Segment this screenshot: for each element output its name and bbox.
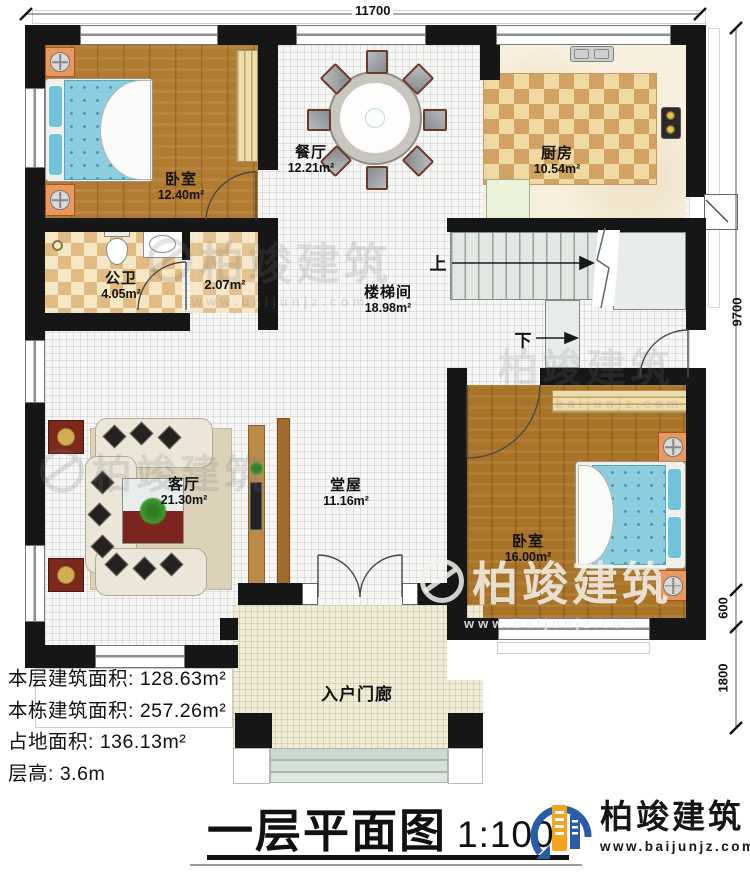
- window: [25, 88, 45, 168]
- bed-pillow: [667, 516, 682, 559]
- brand-site: www.baijunjz.com: [600, 839, 750, 854]
- stair-landing: [613, 232, 686, 310]
- room-label-porch: 入户门廊: [321, 685, 393, 705]
- wardrobe: [552, 390, 690, 413]
- stair-up-label: 上: [430, 250, 447, 275]
- window: [25, 545, 45, 622]
- lamp-icon: [50, 190, 70, 210]
- side-table: [48, 420, 84, 454]
- wall-segment: [418, 583, 450, 605]
- wall-segment: [650, 618, 706, 640]
- window: [25, 340, 45, 403]
- bed-pillow: [48, 85, 63, 128]
- info-line: 本栋建筑面积: 257.26m²: [8, 696, 226, 728]
- wall-segment: [447, 368, 467, 385]
- room-label-bedroom2: 卧室 16.00m²: [505, 533, 552, 565]
- brand-name: 柏竣建筑: [600, 797, 750, 837]
- window: [498, 618, 650, 640]
- nightstand: [658, 570, 688, 601]
- stair-down-corridor: [545, 300, 580, 368]
- kitchen-sink-basin: [594, 49, 609, 59]
- dim-top: 11700: [352, 3, 393, 18]
- stair-flight: [450, 232, 600, 300]
- room-label-vestibule: 2.07m²: [204, 278, 245, 293]
- porch-side-apron: [448, 748, 483, 784]
- dim-tick: [730, 22, 742, 34]
- wall-segment: [686, 378, 706, 640]
- tv: [250, 482, 262, 530]
- dim-tick: [730, 722, 742, 734]
- shower-head: [52, 240, 63, 251]
- plant-icon: [250, 462, 263, 475]
- dining-chair: [366, 50, 388, 74]
- door-frame: [302, 583, 318, 605]
- wall-segment: [258, 45, 278, 170]
- title-underline-thin: [190, 864, 582, 866]
- wall-segment: [258, 232, 278, 330]
- title-text: 一层平面图: [207, 795, 447, 861]
- area-summary: 本层建筑面积: 128.63m² 本栋建筑面积: 257.26m² 占地面积: …: [8, 664, 226, 790]
- table-ornament-icon: [57, 428, 75, 446]
- dining-chair: [366, 166, 388, 190]
- right-eave-line: [708, 28, 720, 308]
- wall-segment: [25, 25, 45, 88]
- floor-plan: 11700 9700 600 1800 柏竣建筑 www.baijunjz.co…: [0, 0, 750, 879]
- stove-burner: [666, 111, 675, 120]
- kitchen-side-door-niche: [704, 194, 738, 230]
- bed-pillow: [667, 468, 682, 511]
- window: [296, 25, 426, 45]
- room-label-stairwell: 楼梯间 18.98m²: [364, 284, 412, 316]
- lamp-icon: [663, 437, 683, 457]
- porch-step: [270, 772, 448, 783]
- nightstand: [45, 47, 75, 77]
- dim-tick: [730, 584, 742, 596]
- wall-segment: [480, 45, 500, 80]
- wall-segment: [540, 368, 706, 385]
- vestibule-floor: [190, 230, 258, 313]
- room-label-hall: 堂屋 11.16m²: [323, 477, 369, 509]
- bed-pillow: [48, 133, 63, 176]
- nightstand: [45, 184, 75, 216]
- info-line: 占地面积: 136.13m²: [8, 727, 226, 759]
- bath-basin: [149, 235, 176, 253]
- room-label-dining: 餐厅 12.21m²: [288, 144, 335, 176]
- dim-right-9700: 9700: [730, 295, 745, 330]
- porch-column: [235, 713, 272, 748]
- door-frame: [402, 583, 418, 605]
- dim-tick: [730, 621, 742, 633]
- wall-segment: [25, 313, 190, 331]
- porch-step: [270, 748, 448, 760]
- stove-burner: [666, 125, 675, 134]
- dining-chair: [423, 109, 447, 131]
- side-table: [48, 558, 84, 592]
- wall-segment: [218, 25, 296, 45]
- porch-column: [448, 713, 483, 748]
- room-label-living: 客厅 21.30m²: [161, 476, 208, 508]
- room-label-bath: 公卫 4.05m²: [101, 270, 141, 302]
- kitchen-cabinet: [486, 179, 530, 219]
- brand-logo-icon: [528, 797, 594, 867]
- dining-chair: [307, 109, 331, 131]
- porch-pier: [220, 618, 238, 640]
- room-label-bedroom1: 卧室 12.40m²: [158, 171, 205, 203]
- dining-table-center: [365, 108, 385, 128]
- wall-segment: [447, 385, 467, 640]
- info-line: 层高: 3.6m: [8, 759, 226, 791]
- porch-step: [270, 760, 448, 772]
- table-ornament-icon: [57, 566, 75, 584]
- wall-segment: [447, 218, 706, 232]
- wall-segment: [686, 227, 706, 330]
- dim-right-600: 600: [716, 594, 731, 622]
- brand-logo: 柏竣建筑 www.baijunjz.com: [528, 797, 750, 867]
- drawing-title: 一层平面图 1:100: [207, 795, 555, 861]
- kitchen-sink-basin: [574, 49, 589, 59]
- wall-segment: [238, 583, 302, 605]
- info-line: 本层建筑面积: 128.63m²: [8, 664, 226, 696]
- nightstand: [658, 432, 688, 462]
- porch-side-apron: [233, 748, 270, 784]
- bedroom2-window-sill: [497, 642, 650, 654]
- dim-tick: [20, 8, 32, 20]
- dim-right-1800: 1800: [716, 661, 731, 696]
- window: [80, 25, 218, 45]
- stair-down-label: 下: [515, 327, 532, 352]
- wall-segment: [426, 25, 496, 45]
- wall-segment: [182, 232, 190, 260]
- wall-segment: [25, 218, 278, 232]
- window: [496, 25, 671, 45]
- lamp-icon: [663, 576, 683, 596]
- room-label-kitchen: 厨房 10.54m²: [534, 145, 581, 177]
- wall-segment: [686, 25, 706, 197]
- wall-segment: [25, 403, 45, 545]
- lamp-icon: [50, 52, 70, 72]
- wardrobe: [236, 50, 258, 162]
- tv-wall-partition: [277, 418, 290, 595]
